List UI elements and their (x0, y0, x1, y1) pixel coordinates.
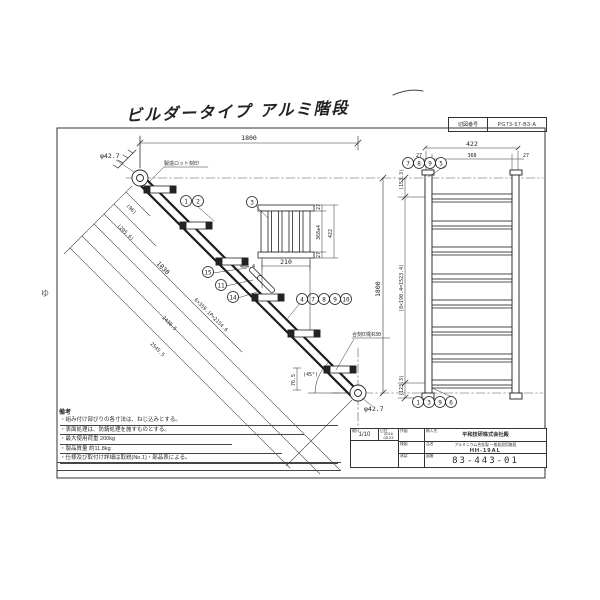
empty-cell (351, 441, 399, 467)
drawing-number: 83-443-01 (425, 454, 546, 467)
svg-text:27: 27 (316, 252, 322, 258)
date-cell: 日付 2016 05.23 (379, 429, 399, 441)
front-view-rungs (432, 194, 512, 388)
drawing-number-cell: 図番 83-443-01 (425, 454, 546, 467)
svg-text:27: 27 (316, 204, 322, 210)
svg-text:9: 9 (333, 297, 337, 304)
notes-divider (57, 470, 341, 471)
svg-text:422: 422 (466, 140, 478, 148)
diag-dim-2545: 2545.5 (149, 341, 166, 358)
top-pivot-diameter: φ42.7 (100, 152, 120, 160)
svg-text:14: 14 (229, 295, 237, 302)
svg-text:1: 1 (184, 199, 188, 206)
notes-block: 備考 ・組み付け部びりの各寸法は、ねじ込みとする。 ・表面処理は、防錆処理を施す… (57, 407, 345, 478)
diag-dim-1030: 1030 (155, 260, 172, 277)
lot-note-leader (149, 167, 208, 182)
drawing-sheet: ビルダータイプ アルミ階段 切図番号 PG73-57-B3-A ゆ (0, 0, 600, 600)
svg-text:368: 368 (467, 153, 476, 159)
svg-text:7: 7 (406, 161, 410, 168)
svg-text:8: 8 (322, 297, 326, 304)
bottom-pivot-diameter: φ42.7 (364, 405, 384, 413)
customer-name: 平和技研株式会社殿 (425, 429, 546, 441)
match-note-leader (336, 338, 390, 370)
note-item: ・最大使用荷重 200kg (60, 435, 232, 445)
note-item: ・製品質量 約11.8kg (60, 445, 282, 455)
approval-label: 検図 (400, 442, 408, 446)
svg-text:464.4: 464.4 (240, 264, 255, 270)
svg-text:(8×190.4=1523.4): (8×190.4=1523.4) (399, 264, 405, 312)
match-mark-note: 合刻印彫R30 (352, 331, 381, 338)
side-view-stringer (137, 176, 357, 396)
drawing-canvas: φ42.7 製造ロット刻印 φ42.7 合刻印彫R30 (45°) 76.5 1… (0, 0, 600, 600)
pen-stroke (393, 90, 423, 95)
svg-text:27: 27 (523, 153, 529, 159)
note-item: ・表面処理は、防錆処理を施すものとする。 (60, 426, 304, 436)
approval-label: 作図 (400, 429, 408, 433)
svg-text:210: 210 (280, 258, 292, 266)
approval-cell: 承認 (399, 454, 425, 467)
svg-text:(153.3): (153.3) (399, 169, 405, 190)
svg-text:10: 10 (342, 297, 350, 304)
svg-text:422: 422 (328, 229, 334, 238)
drawing-number-label: 図番 (426, 454, 434, 458)
title-block: 縮尺 1/10 日付 2016 05.23 作図 検図 承認 納入先 平和技研株… (350, 428, 547, 468)
customer-label: 納入先 (426, 429, 437, 433)
svg-text:2: 2 (196, 199, 200, 206)
diag-dim-205: (205.6) (116, 223, 135, 242)
lot-stamp-note: 製造ロット刻印 (164, 160, 199, 167)
svg-text:1: 1 (416, 400, 420, 407)
date-monthday: 05.23 (379, 436, 398, 441)
approval-cell: 検図 (399, 442, 425, 455)
scale-cell: 縮尺 1/10 (351, 429, 379, 441)
note-item: ・組み付け部びりの各寸法は、ねじ込みとする。 (60, 416, 338, 426)
scale-label: 縮尺 (352, 429, 360, 433)
svg-text:3: 3 (427, 400, 431, 407)
svg-text:4: 4 (300, 297, 304, 304)
date-label: 日付 (380, 429, 388, 433)
dim-76-5: 76.5 (291, 368, 301, 390)
svg-text:6: 6 (449, 400, 453, 407)
notes-divider (57, 462, 341, 463)
svg-text:7: 7 (311, 297, 315, 304)
svg-text:11: 11 (217, 283, 225, 290)
diag-dim-96: (96) (125, 203, 138, 216)
svg-text:5: 5 (439, 161, 443, 168)
svg-text:8: 8 (417, 161, 421, 168)
tread-callout-number: 3 (250, 200, 254, 207)
svg-text:(123.3): (123.3) (399, 375, 405, 396)
dim-right-1800: 1800 (374, 175, 386, 396)
svg-text:76.5: 76.5 (291, 374, 297, 386)
front-view-rails (422, 170, 522, 399)
customer-cell: 納入先 平和技研株式会社殿 (425, 429, 546, 442)
approval-label: 承認 (400, 454, 408, 458)
notes-label: 備考 (57, 407, 345, 416)
angle-label: (45°) (303, 372, 318, 378)
product-cell: 品名 アルミニウム合金製 一般仮設用階段 HH-19AL (425, 442, 546, 455)
top-pivot (113, 136, 148, 186)
svg-text:15: 15 (204, 270, 212, 277)
approval-cell: 作図 (399, 429, 425, 442)
model-number: HH-19AL (425, 448, 546, 454)
front-view-left-dims: (153.3) (8×190.4=1523.4) (123.3) (398, 169, 425, 401)
svg-text:9: 9 (428, 161, 432, 168)
svg-text:9: 9 (438, 400, 442, 407)
svg-text:1800: 1800 (374, 281, 382, 297)
diag-dim-2430: 2430.5 (161, 315, 178, 332)
product-label: 品名 (426, 442, 434, 446)
top-pivot-leader (116, 160, 134, 172)
svg-text:368±4: 368±4 (316, 225, 322, 240)
svg-text:1800: 1800 (241, 134, 257, 142)
side-view-treads (144, 186, 356, 373)
